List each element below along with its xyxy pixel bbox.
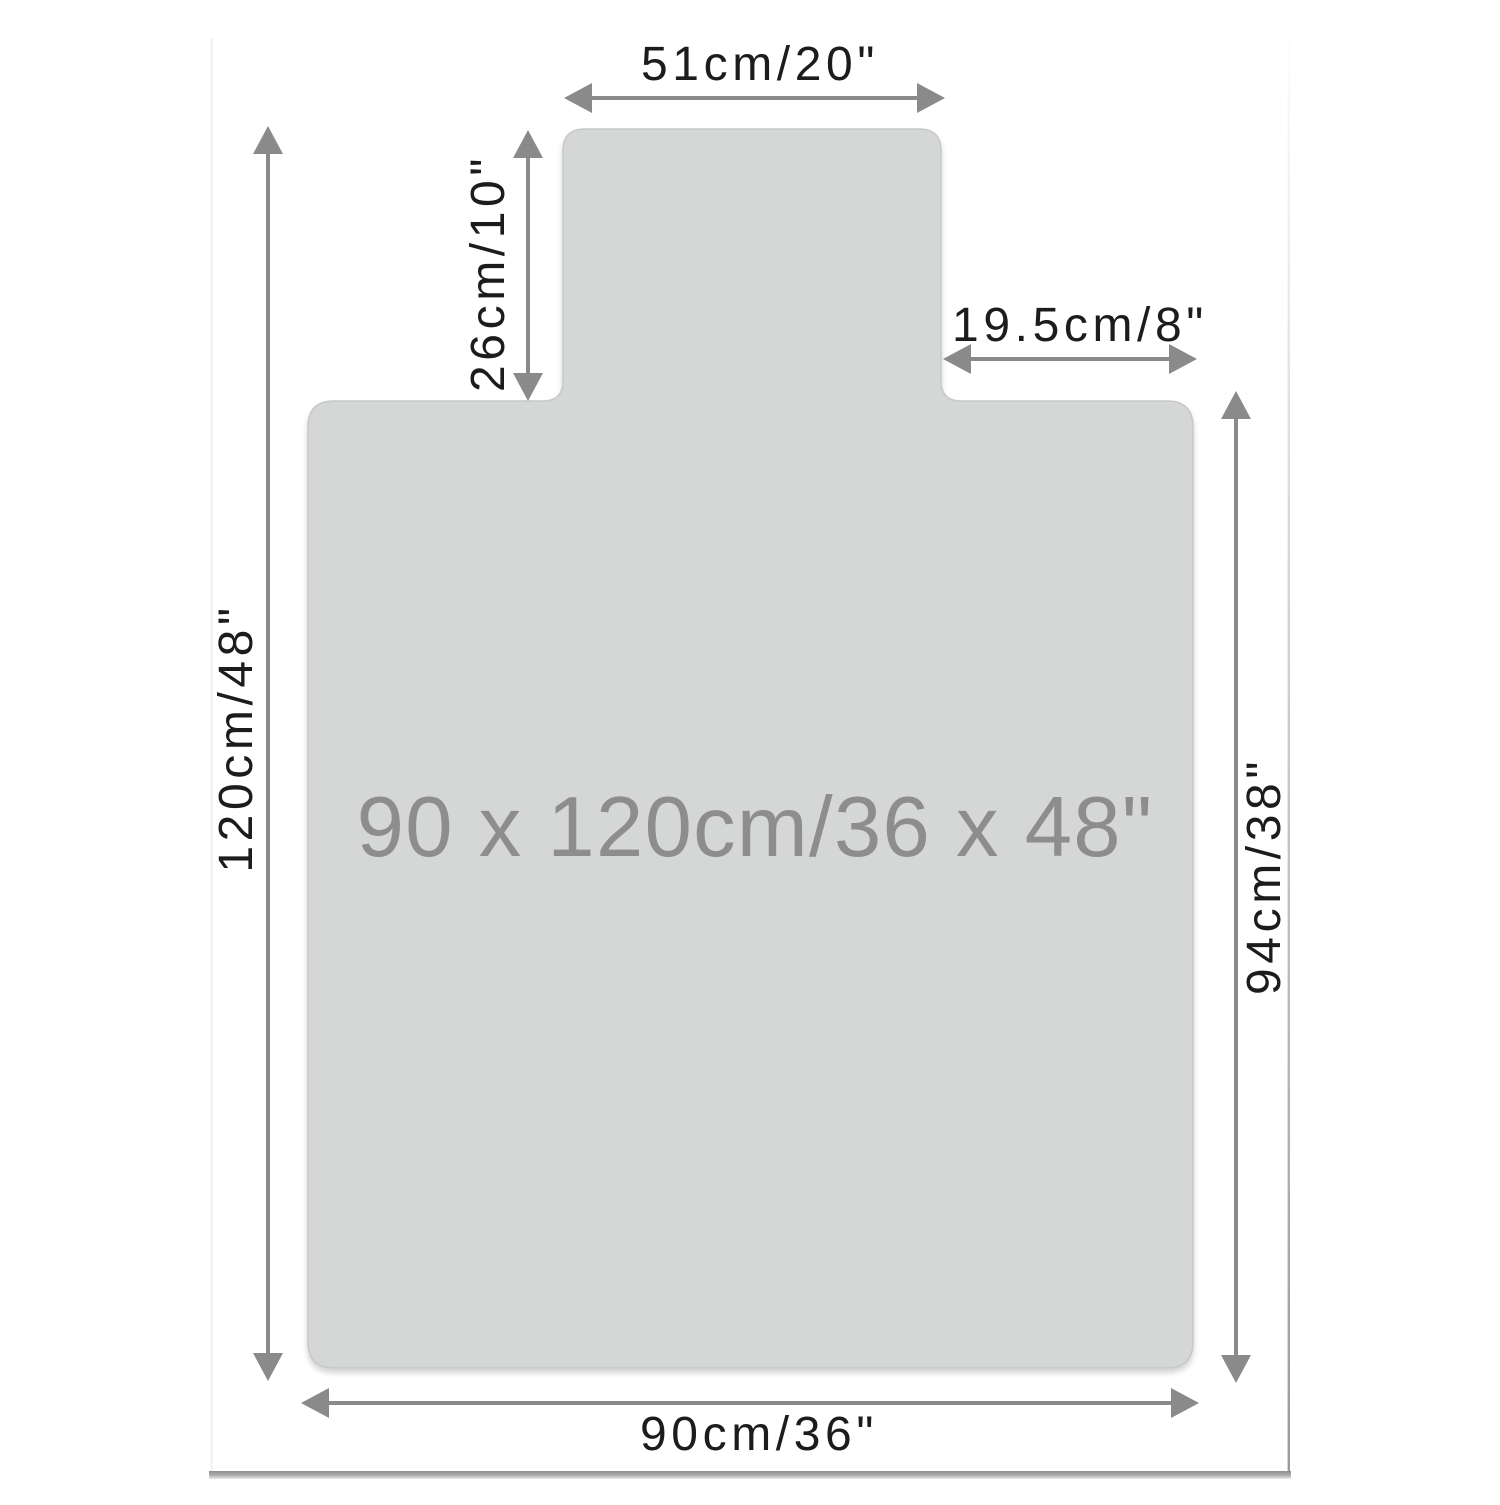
svg-text:120cm/48": 120cm/48" xyxy=(210,603,263,872)
svg-text:90 x 120cm/36 x 48": 90 x 120cm/36 x 48" xyxy=(357,780,1154,875)
svg-text:90cm/36": 90cm/36" xyxy=(640,1408,878,1461)
svg-text:51cm/20": 51cm/20" xyxy=(641,38,879,91)
svg-text:94cm/38": 94cm/38" xyxy=(1238,757,1291,995)
svg-text:19.5cm/8": 19.5cm/8" xyxy=(952,299,1208,352)
svg-text:26cm/10": 26cm/10" xyxy=(462,154,515,392)
